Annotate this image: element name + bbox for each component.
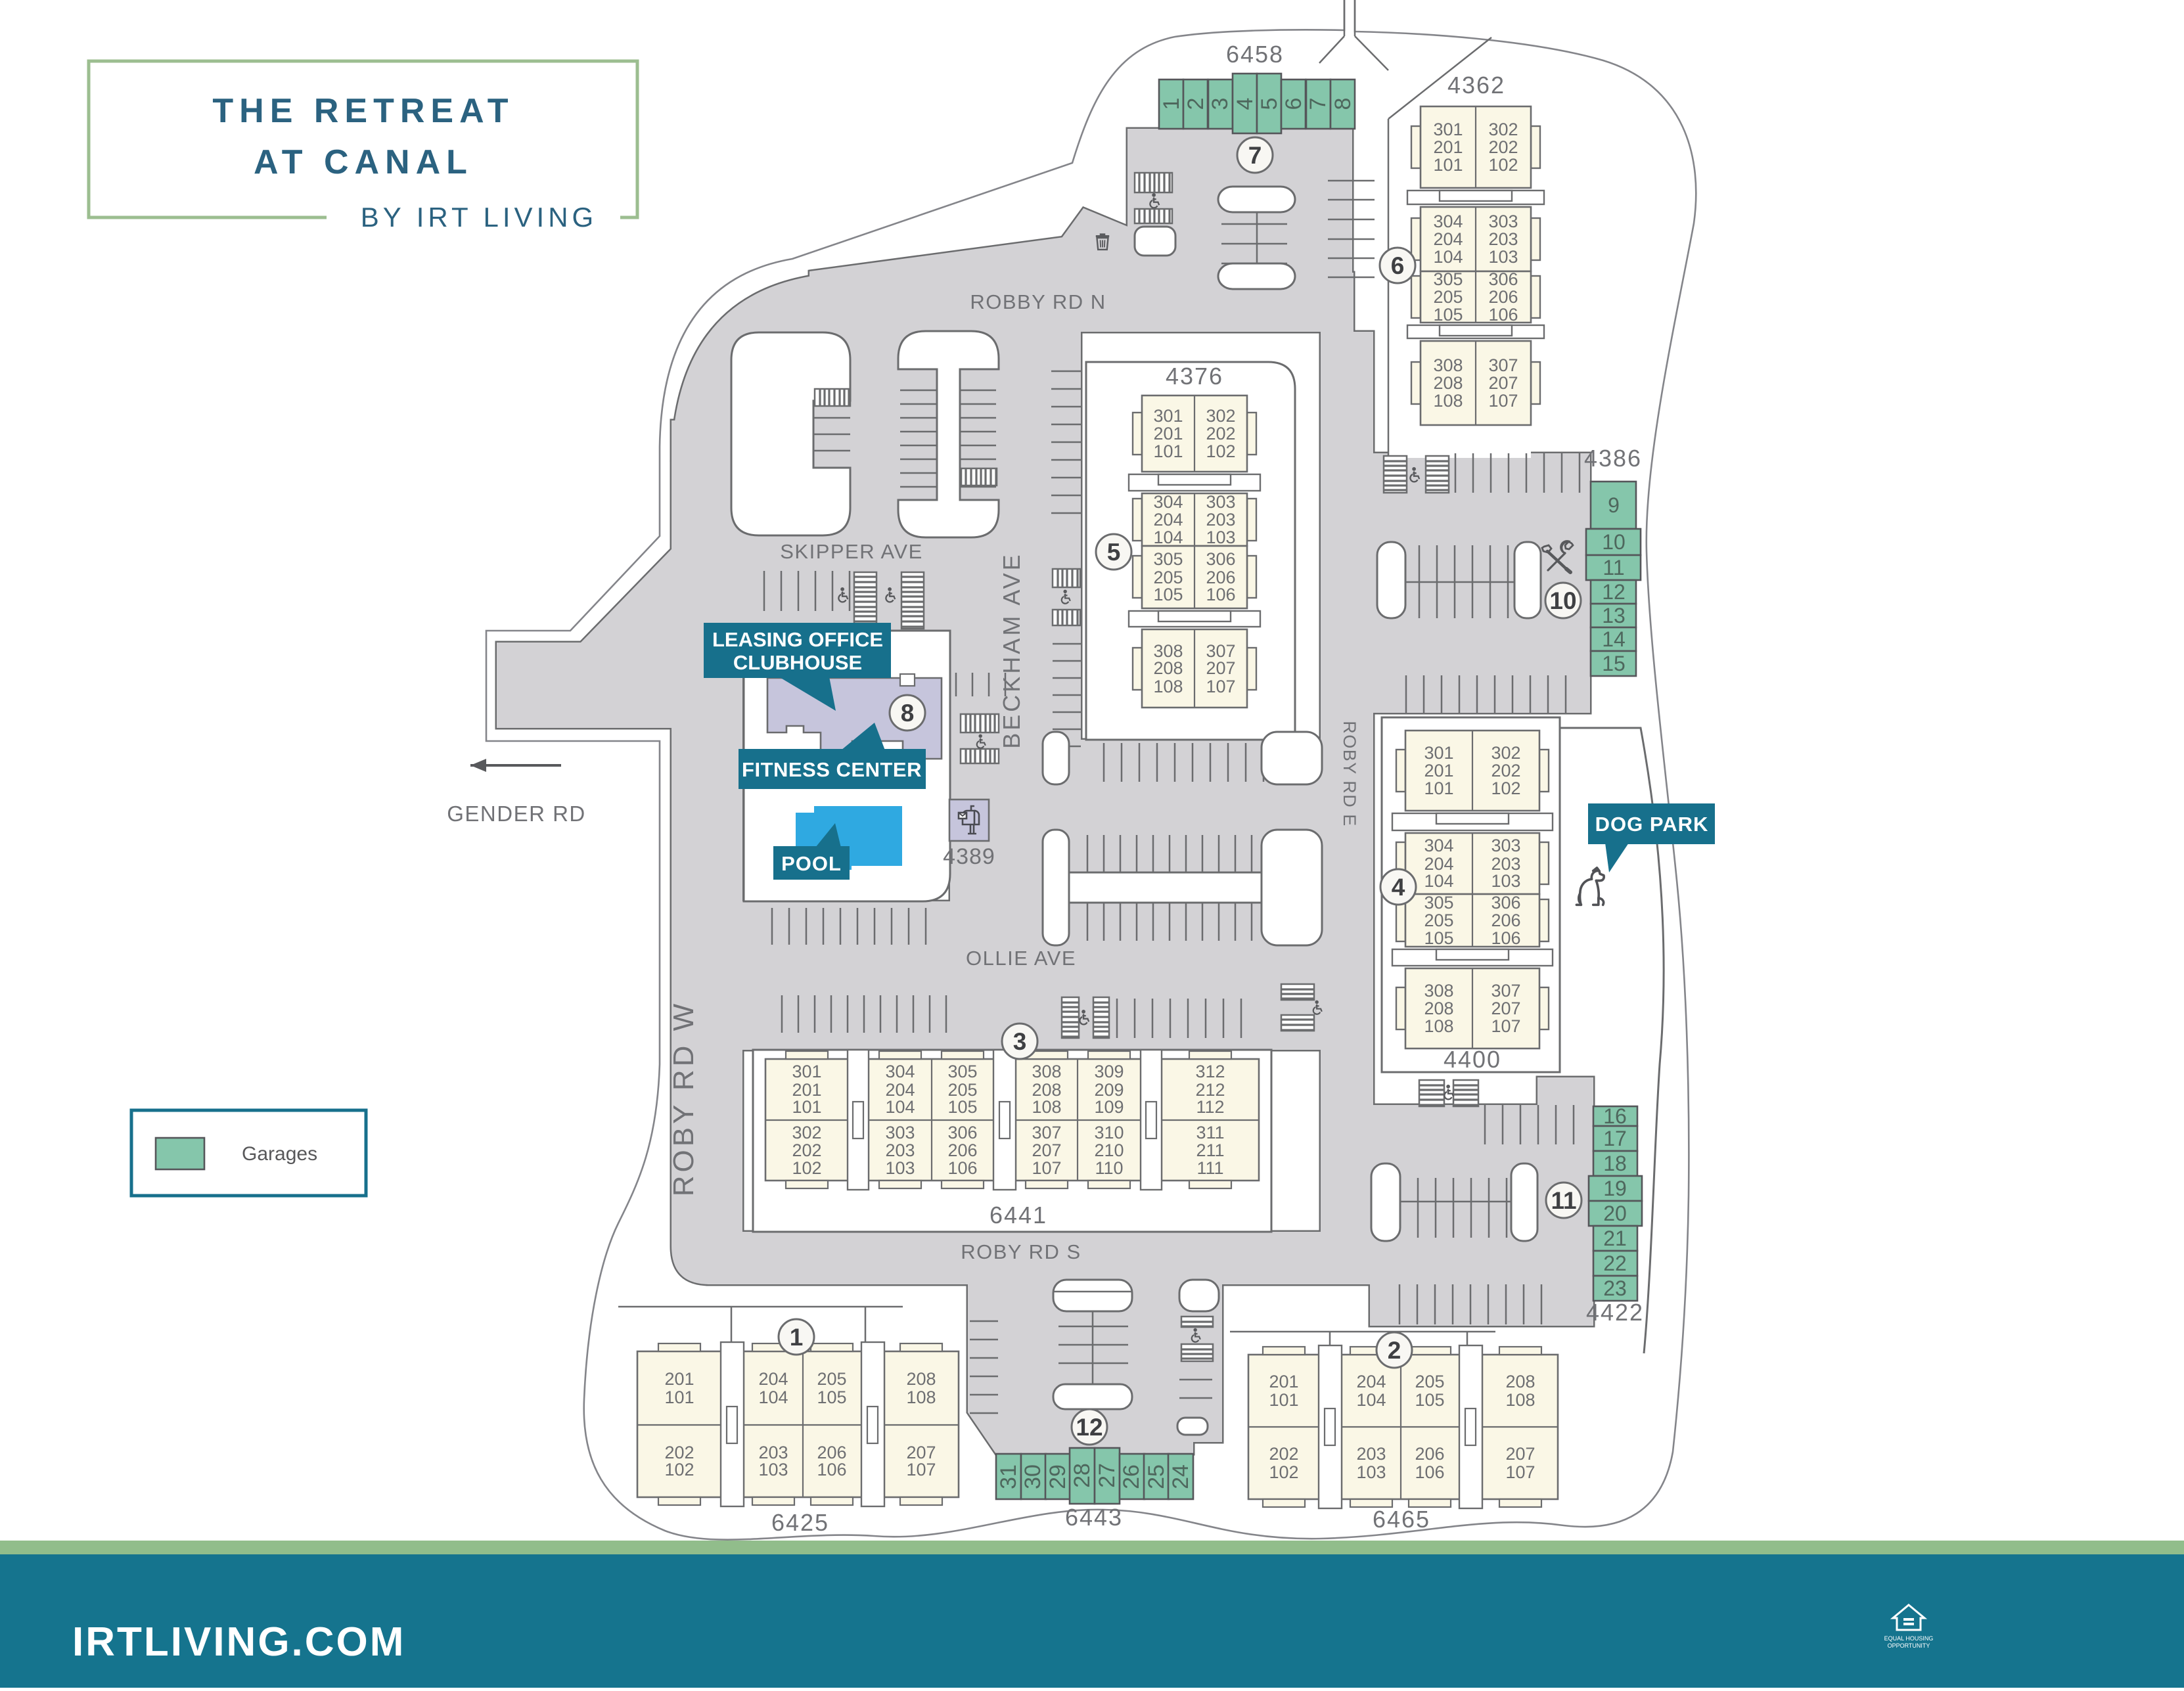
svg-text:306: 306 (1206, 549, 1235, 569)
svg-text:18: 18 (1603, 1152, 1627, 1175)
svg-text:20: 20 (1603, 1202, 1627, 1225)
svg-text:31: 31 (996, 1464, 1021, 1489)
svg-text:FITNESS CENTER: FITNESS CENTER (742, 758, 922, 781)
svg-text:OLLIE AVE: OLLIE AVE (966, 947, 1076, 970)
svg-text:108: 108 (1433, 391, 1463, 411)
svg-text:2: 2 (1183, 98, 1208, 110)
svg-text:101: 101 (1424, 778, 1453, 798)
svg-text:102: 102 (664, 1460, 694, 1479)
svg-text:203: 203 (1356, 1444, 1386, 1464)
svg-text:312: 312 (1195, 1062, 1225, 1081)
svg-text:101: 101 (664, 1387, 694, 1407)
svg-text:207: 207 (1032, 1140, 1061, 1160)
svg-text:POOL: POOL (781, 852, 842, 875)
svg-text:102: 102 (1488, 155, 1518, 175)
svg-text:8: 8 (901, 700, 915, 727)
svg-text:104: 104 (885, 1097, 915, 1117)
svg-text:107: 107 (1505, 1462, 1535, 1482)
svg-text:25: 25 (1144, 1464, 1169, 1489)
svg-text:301: 301 (792, 1062, 821, 1081)
svg-text:ROBY RD W: ROBY RD W (668, 1001, 700, 1196)
svg-text:30: 30 (1020, 1464, 1045, 1489)
svg-text:304: 304 (1153, 492, 1183, 512)
svg-text:201: 201 (1153, 424, 1183, 443)
svg-text:102: 102 (1491, 778, 1520, 798)
svg-text:301: 301 (1424, 743, 1453, 763)
svg-text:4: 4 (1233, 98, 1258, 110)
svg-text:302: 302 (1488, 120, 1518, 139)
svg-text:IRTLIVING.COM: IRTLIVING.COM (72, 1619, 405, 1665)
svg-text:310: 310 (1094, 1123, 1124, 1142)
svg-text:110: 110 (1095, 1158, 1123, 1178)
svg-text:106: 106 (1491, 928, 1520, 948)
svg-text:101: 101 (1269, 1390, 1298, 1410)
svg-text:204: 204 (1153, 510, 1183, 530)
svg-text:22: 22 (1603, 1251, 1627, 1275)
svg-text:10: 10 (1602, 530, 1626, 554)
svg-text:201: 201 (664, 1369, 694, 1389)
svg-text:4400: 4400 (1444, 1046, 1501, 1073)
svg-text:6425: 6425 (771, 1509, 829, 1536)
svg-text:306: 306 (947, 1123, 977, 1142)
svg-text:CLUBHOUSE: CLUBHOUSE (733, 651, 862, 674)
svg-text:3: 3 (1208, 98, 1233, 110)
svg-text:208: 208 (1424, 999, 1453, 1018)
svg-text:201: 201 (1424, 761, 1453, 780)
svg-text:21: 21 (1603, 1227, 1627, 1250)
svg-text:201: 201 (1269, 1372, 1298, 1391)
svg-text:4389: 4389 (943, 844, 995, 869)
svg-text:23: 23 (1603, 1276, 1627, 1300)
svg-text:207: 207 (1206, 658, 1235, 678)
svg-text:102: 102 (1206, 441, 1235, 461)
svg-text:ROBY RD E: ROBY RD E (1340, 721, 1359, 827)
svg-text:104: 104 (1153, 528, 1183, 547)
svg-text:106: 106 (1488, 305, 1518, 325)
svg-text:202: 202 (1488, 137, 1518, 157)
svg-text:108: 108 (906, 1387, 936, 1407)
svg-text:THE RETREAT: THE RETREAT (212, 92, 514, 130)
svg-text:208: 208 (1505, 1372, 1535, 1391)
svg-text:204: 204 (1356, 1372, 1386, 1391)
svg-text:15: 15 (1602, 652, 1626, 675)
svg-text:205: 205 (1424, 911, 1453, 930)
svg-text:6443: 6443 (1065, 1504, 1123, 1531)
svg-text:4: 4 (1392, 874, 1405, 901)
svg-text:204: 204 (1433, 229, 1463, 249)
svg-text:24: 24 (1168, 1464, 1193, 1489)
svg-text:GENDER RD: GENDER RD (447, 801, 586, 826)
svg-text:201: 201 (1433, 137, 1463, 157)
svg-text:105: 105 (1415, 1390, 1444, 1410)
svg-text:12: 12 (1602, 580, 1626, 604)
svg-text:7: 7 (1248, 142, 1262, 169)
svg-text:1: 1 (1159, 98, 1184, 110)
svg-text:LEASING OFFICE: LEASING OFFICE (712, 628, 883, 651)
svg-text:207: 207 (1491, 999, 1520, 1018)
svg-text:103: 103 (1488, 247, 1518, 267)
svg-text:103: 103 (1491, 871, 1520, 891)
svg-text:5: 5 (1107, 539, 1121, 566)
svg-text:207: 207 (1488, 373, 1518, 393)
svg-text:308: 308 (1424, 981, 1453, 1001)
svg-text:28: 28 (1070, 1463, 1095, 1488)
svg-text:6: 6 (1391, 252, 1405, 279)
svg-text:210: 210 (1094, 1140, 1124, 1160)
svg-text:206: 206 (1491, 911, 1520, 930)
svg-text:205: 205 (1415, 1372, 1444, 1391)
svg-text:Garages: Garages (242, 1143, 317, 1165)
svg-text:204: 204 (758, 1369, 788, 1389)
svg-text:111: 111 (1196, 1158, 1223, 1178)
svg-text:8: 8 (1331, 98, 1355, 110)
svg-text:104: 104 (758, 1387, 788, 1407)
svg-text:3: 3 (1013, 1028, 1027, 1055)
svg-text:302: 302 (1206, 406, 1235, 426)
svg-text:ROBBY RD N: ROBBY RD N (970, 290, 1106, 313)
svg-text:101: 101 (1153, 441, 1183, 461)
svg-text:305: 305 (1433, 269, 1463, 289)
svg-text:107: 107 (906, 1460, 936, 1479)
svg-text:208: 208 (1433, 373, 1463, 393)
svg-text:301: 301 (1153, 406, 1183, 426)
svg-text:104: 104 (1424, 871, 1453, 891)
svg-text:206: 206 (1488, 287, 1518, 307)
svg-text:304: 304 (885, 1062, 915, 1081)
svg-text:14: 14 (1602, 627, 1626, 651)
svg-text:7: 7 (1306, 98, 1331, 110)
svg-text:207: 207 (1505, 1444, 1535, 1464)
svg-text:16: 16 (1603, 1104, 1627, 1128)
svg-text:BY IRT LIVING: BY IRT LIVING (361, 202, 597, 233)
svg-text:306: 306 (1491, 893, 1520, 913)
svg-text:306: 306 (1488, 269, 1518, 289)
svg-text:108: 108 (1153, 677, 1183, 696)
svg-text:11: 11 (1603, 556, 1624, 579)
svg-text:4422: 4422 (1586, 1299, 1644, 1326)
svg-text:EQUAL HOUSING: EQUAL HOUSING (1884, 1635, 1934, 1642)
svg-text:AT CANAL: AT CANAL (254, 143, 473, 181)
svg-text:5: 5 (1257, 98, 1282, 110)
svg-text:6458: 6458 (1226, 41, 1284, 68)
svg-text:307: 307 (1491, 981, 1520, 1001)
svg-text:307: 307 (1488, 355, 1518, 375)
svg-text:309: 309 (1094, 1062, 1124, 1081)
svg-text:2: 2 (1388, 1337, 1401, 1364)
svg-text:105: 105 (817, 1387, 846, 1407)
svg-text:9: 9 (1608, 493, 1620, 517)
svg-text:203: 203 (1488, 229, 1518, 249)
svg-text:303: 303 (1206, 492, 1235, 512)
svg-text:303: 303 (1488, 212, 1518, 231)
svg-text:108: 108 (1424, 1016, 1453, 1036)
svg-text:19: 19 (1603, 1177, 1627, 1200)
svg-text:6465: 6465 (1373, 1506, 1430, 1533)
svg-text:206: 206 (947, 1140, 977, 1160)
svg-text:12: 12 (1076, 1414, 1103, 1441)
svg-text:202: 202 (1269, 1444, 1298, 1464)
svg-text:29: 29 (1045, 1464, 1070, 1489)
svg-text:104: 104 (1433, 247, 1463, 267)
svg-text:OPPORTUNITY: OPPORTUNITY (1888, 1642, 1930, 1649)
svg-text:1: 1 (790, 1324, 804, 1351)
svg-text:311: 311 (1196, 1123, 1224, 1142)
svg-text:208: 208 (1153, 658, 1183, 678)
svg-text:105: 105 (947, 1097, 977, 1117)
svg-text:6: 6 (1281, 98, 1306, 110)
svg-text:6441: 6441 (990, 1202, 1047, 1229)
svg-text:10: 10 (1549, 587, 1576, 614)
svg-text:13: 13 (1602, 604, 1626, 627)
svg-text:307: 307 (1032, 1123, 1061, 1142)
svg-text:4376: 4376 (1166, 363, 1223, 390)
svg-text:BECKHAM AVE: BECKHAM AVE (998, 552, 1025, 748)
svg-text:106: 106 (817, 1460, 846, 1479)
svg-text:203: 203 (885, 1140, 915, 1160)
svg-text:205: 205 (1433, 287, 1463, 307)
svg-text:304: 304 (1433, 212, 1463, 231)
svg-text:202: 202 (792, 1140, 821, 1160)
svg-text:101: 101 (1433, 155, 1463, 175)
svg-text:SKIPPER AVE: SKIPPER AVE (780, 540, 923, 563)
svg-text:102: 102 (792, 1158, 821, 1178)
svg-text:112: 112 (1196, 1097, 1224, 1117)
svg-text:211: 211 (1196, 1140, 1224, 1160)
svg-text:202: 202 (1206, 424, 1235, 443)
svg-text:103: 103 (758, 1460, 788, 1479)
svg-text:308: 308 (1032, 1062, 1061, 1081)
svg-text:104: 104 (1356, 1390, 1386, 1410)
svg-text:27: 27 (1095, 1463, 1120, 1488)
svg-text:102: 102 (1269, 1462, 1298, 1482)
svg-text:302: 302 (1491, 743, 1520, 763)
svg-text:101: 101 (792, 1097, 821, 1117)
svg-text:ROBY RD S: ROBY RD S (961, 1240, 1081, 1263)
svg-text:303: 303 (1491, 836, 1520, 855)
svg-text:107: 107 (1032, 1158, 1061, 1178)
svg-text:11: 11 (1551, 1187, 1576, 1214)
svg-text:26: 26 (1119, 1464, 1144, 1489)
svg-text:DOG PARK: DOG PARK (1595, 813, 1709, 836)
svg-text:208: 208 (906, 1369, 936, 1389)
svg-text:305: 305 (1424, 893, 1453, 913)
svg-text:305: 305 (1153, 549, 1183, 569)
svg-text:107: 107 (1488, 391, 1518, 411)
svg-text:205: 205 (817, 1369, 846, 1389)
svg-text:202: 202 (1491, 761, 1520, 780)
svg-text:106: 106 (947, 1158, 977, 1178)
svg-text:301: 301 (1433, 120, 1463, 139)
svg-text:302: 302 (792, 1123, 821, 1142)
svg-text:103: 103 (1356, 1462, 1386, 1482)
svg-text:106: 106 (1206, 585, 1235, 604)
svg-text:108: 108 (1032, 1097, 1061, 1117)
svg-text:107: 107 (1206, 677, 1235, 696)
svg-text:108: 108 (1505, 1390, 1535, 1410)
svg-text:206: 206 (1415, 1444, 1444, 1464)
svg-text:303: 303 (885, 1123, 915, 1142)
svg-text:109: 109 (1094, 1097, 1124, 1117)
svg-text:4362: 4362 (1447, 72, 1505, 99)
svg-text:105: 105 (1424, 928, 1453, 948)
svg-text:203: 203 (1206, 510, 1235, 530)
svg-text:103: 103 (1206, 528, 1235, 547)
svg-text:305: 305 (947, 1062, 977, 1081)
svg-text:103: 103 (885, 1158, 915, 1178)
svg-text:17: 17 (1603, 1127, 1627, 1150)
svg-text:308: 308 (1433, 355, 1463, 375)
svg-text:105: 105 (1153, 585, 1183, 604)
svg-text:107: 107 (1491, 1016, 1520, 1036)
svg-text:105: 105 (1433, 305, 1463, 325)
svg-text:4386: 4386 (1584, 445, 1642, 472)
svg-text:304: 304 (1424, 836, 1453, 855)
svg-text:106: 106 (1415, 1462, 1444, 1482)
